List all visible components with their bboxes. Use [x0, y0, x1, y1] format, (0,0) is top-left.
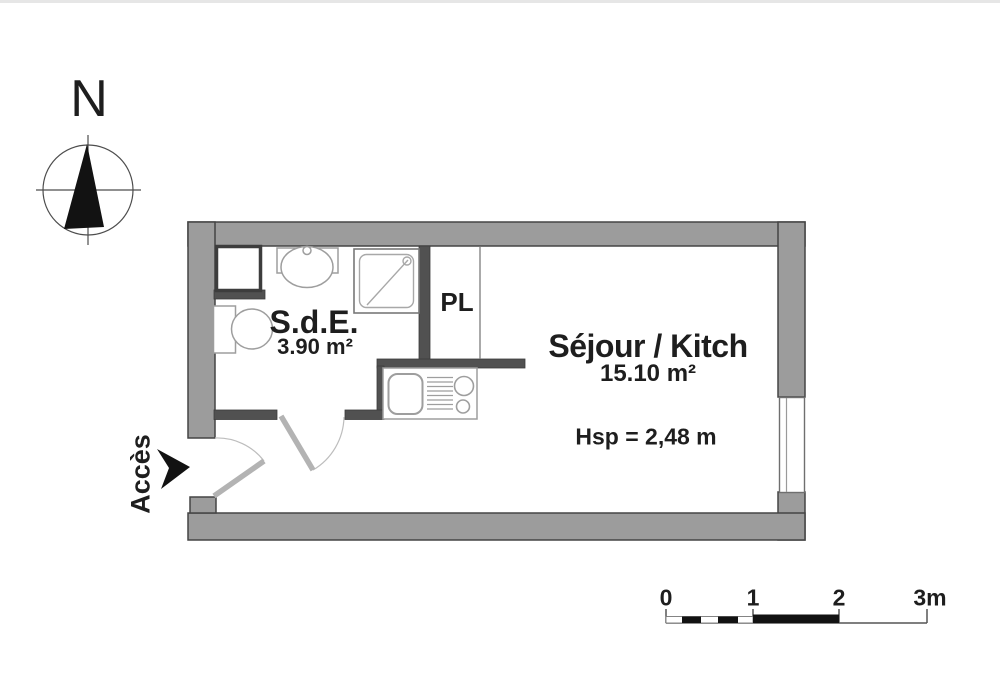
scale-segment-solid	[753, 615, 839, 624]
scale-label-1: 1	[747, 587, 760, 610]
kitchen-back-wall	[377, 359, 525, 368]
scale-dash-1	[682, 617, 701, 624]
floorplan-page: N Accès S.d.E. 3.90 m² PL Séjour / Kitch…	[0, 0, 1000, 699]
wall-bottom	[188, 513, 805, 540]
north-label: N	[70, 73, 108, 125]
window-frame	[780, 398, 805, 493]
scale-label-2: 2	[833, 587, 846, 610]
kitchen-block	[383, 368, 477, 419]
bathroom-south-wall-left	[214, 410, 277, 420]
bathroom-door-leaf	[281, 416, 313, 470]
entry-door-arc	[215, 438, 264, 461]
window	[780, 398, 805, 493]
hob-burner-small	[457, 400, 470, 413]
wall-left	[188, 222, 215, 438]
basin-faucet	[303, 247, 311, 255]
bathroom-door-arc	[313, 417, 344, 470]
hob-burner-large	[455, 377, 474, 396]
ceiling-height-label: Hsp = 2,48 m	[575, 426, 716, 449]
access-label: Accès	[128, 434, 155, 514]
wall-right-upper	[778, 222, 805, 397]
access-arrow-icon	[157, 449, 190, 489]
bathroom-south-wall-right	[345, 410, 384, 420]
scale-bar	[666, 609, 927, 623]
wall-top	[188, 222, 805, 246]
toilet-bowl	[232, 309, 273, 349]
living-room-name: Séjour / Kitch	[548, 330, 747, 362]
doors	[214, 416, 344, 496]
living-room-area: 15.10 m²	[600, 362, 696, 386]
scale-dash-2	[718, 617, 738, 624]
scale-segment-checkered	[666, 617, 753, 624]
shower-enclosure	[354, 249, 419, 313]
closet-label: PL	[440, 289, 473, 315]
scale-label-3m: 3m	[913, 587, 946, 610]
scale-label-0: 0	[660, 587, 673, 610]
floorplan-drawing	[0, 0, 1000, 699]
entry-door-jamb	[190, 497, 216, 513]
bathroom-area: 3.90 m²	[277, 336, 353, 358]
bathroom-closet-wall	[419, 246, 430, 362]
compass	[36, 135, 141, 245]
north-arrow-icon	[64, 144, 104, 229]
entry-door-leaf	[214, 461, 264, 496]
kitchen-sink	[389, 374, 423, 414]
duct-box	[217, 247, 261, 291]
